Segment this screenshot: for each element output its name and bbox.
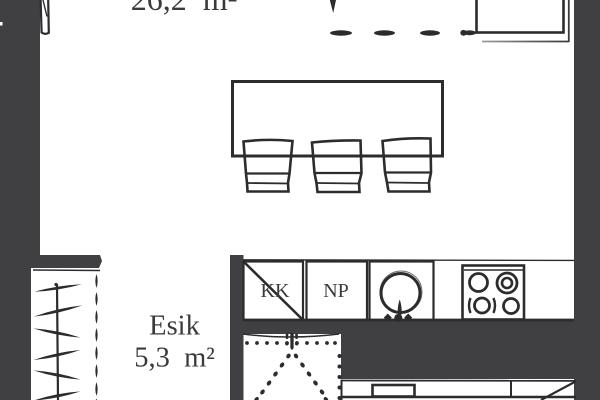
svg-text:Esik: Esik bbox=[149, 311, 200, 342]
svg-text:NP: NP bbox=[323, 280, 349, 302]
svg-text:KK: KK bbox=[261, 280, 290, 302]
svg-text:26,2 m²: 26,2 m² bbox=[131, 0, 237, 17]
svg-text:5,3 m²: 5,3 m² bbox=[134, 343, 215, 374]
